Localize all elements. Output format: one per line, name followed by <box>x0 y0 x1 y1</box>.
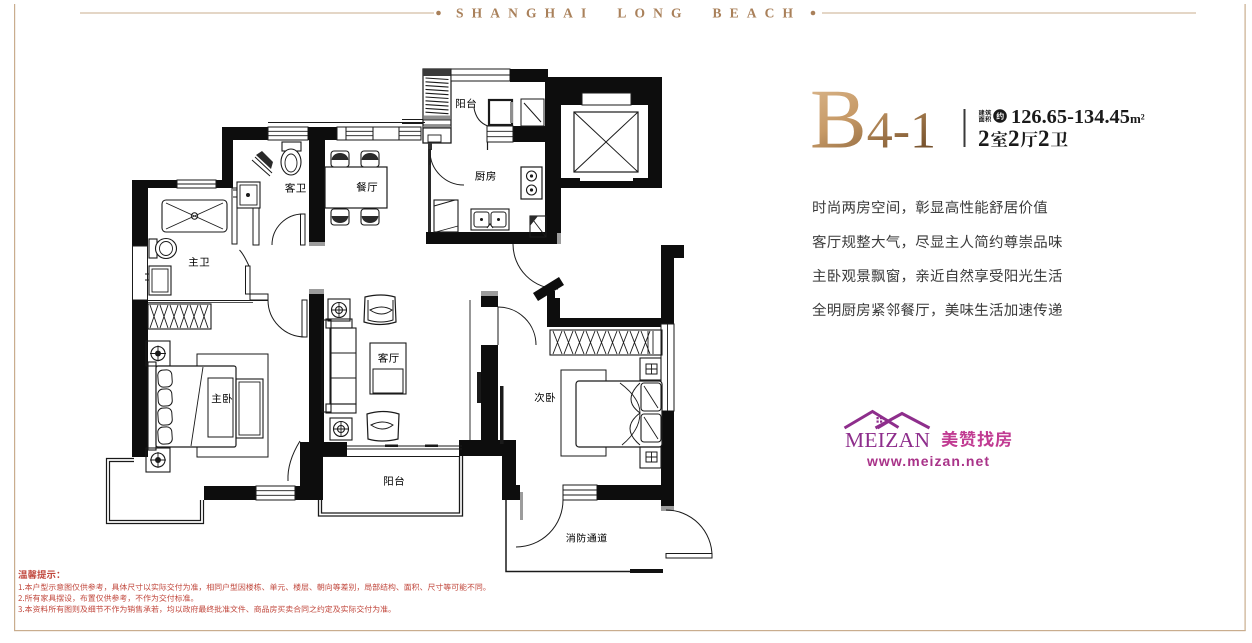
svg-text:MEIZAN: MEIZAN <box>845 428 930 452</box>
svg-text:B4-1: B4-1 <box>810 73 936 167</box>
svg-text:126.65-134.45m²: 126.65-134.45m² <box>1011 106 1145 128</box>
svg-text:www.meizan.net: www.meizan.net <box>866 453 989 469</box>
svg-text:SHANGHAI LONG BEACH: SHANGHAI LONG BEACH <box>456 6 793 21</box>
svg-text:2: 2 <box>1038 126 1050 151</box>
svg-text:2: 2 <box>1008 126 1020 151</box>
svg-text:2: 2 <box>978 126 990 151</box>
